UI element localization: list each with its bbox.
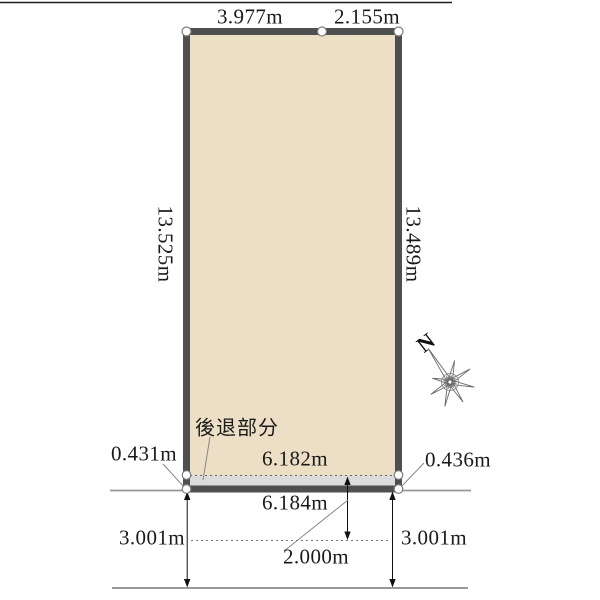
dim-right-edge: 13.489m [401, 206, 426, 283]
dim-setback-right: 0.436m [425, 448, 491, 473]
dim-setback-left: 0.431m [111, 442, 177, 467]
vertex-setback-right [394, 471, 403, 480]
vertex-top-left [182, 27, 191, 36]
dim-frontage: 6.184m [262, 491, 328, 516]
dim-road-width-left: 3.001m [119, 526, 185, 551]
dim-top-right-edge: 2.155m [334, 5, 400, 30]
vertex-bottom-right [394, 485, 403, 494]
north-label: N [412, 328, 440, 358]
vertex-bottom-left [182, 485, 191, 494]
vertex-setback-left [182, 471, 191, 480]
dim-setback-line: 6.182m [262, 447, 328, 472]
dim-road-center-setback: 2.000m [283, 545, 349, 570]
setback-area-label: 後退部分 [195, 412, 279, 441]
setback-strip [190, 476, 395, 486]
dim-top-left-edge: 3.977m [217, 5, 283, 30]
compass-rose: N [409, 328, 483, 415]
dim-road-width-right: 3.001m [401, 526, 467, 551]
dim-left-edge: 13.525m [153, 206, 178, 283]
vertex-top-mid [318, 27, 327, 36]
land-plot-diagram: N 3.977m 2.155m 13.525m 13.489m 後退部分 0.4… [0, 0, 600, 600]
